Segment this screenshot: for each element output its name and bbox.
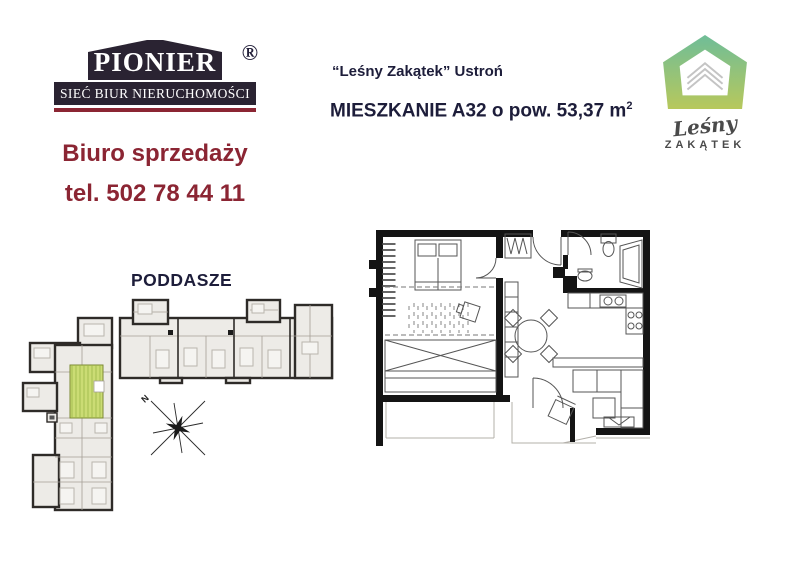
north-compass: N (139, 393, 205, 455)
apartment-floorplan (358, 212, 660, 460)
floor-label: PODDASZE (131, 270, 232, 291)
bedroom-furniture (385, 240, 496, 392)
project-name: “Leśny Zakątek” Ustroń (332, 63, 503, 80)
flyer-page: PIONIER ® SIEĆ BIUR NIERUCHOMOŚCI Biuro … (0, 0, 800, 565)
kitchen-fixtures (568, 293, 643, 334)
lesny-house-icon (660, 33, 750, 111)
unit-title: MIESZKANIE A32 o pow. 53,37 m2 (330, 100, 632, 122)
pionier-wordmark: PIONIER (94, 44, 217, 80)
lesny-logo: Leśny ZAKĄTEK (655, 33, 755, 151)
terrace-outline (386, 402, 650, 443)
overview-floorplan: N (10, 292, 355, 520)
registered-trademark: ® (242, 40, 258, 66)
square-meter-exponent: 2 (626, 100, 632, 112)
pionier-wordmark-shape: PIONIER (88, 40, 222, 80)
walls (369, 230, 650, 446)
sales-office-block: Biuro sprzedaży tel. 502 78 44 11 (34, 140, 276, 208)
brand-underline (54, 108, 256, 112)
living-furniture (505, 234, 643, 428)
pionier-logo: PIONIER ® SIEĆ BIUR NIERUCHOMOŚCI (54, 40, 256, 112)
sales-phone: tel. 502 78 44 11 (34, 180, 276, 208)
highlighted-unit-a32 (70, 365, 104, 418)
pionier-tagline: SIEĆ BIUR NIERUCHOMOŚCI (60, 86, 250, 102)
sales-office-label: Biuro sprzedaży (34, 140, 276, 168)
pionier-tagline-bar: SIEĆ BIUR NIERUCHOMOŚCI (54, 82, 256, 105)
lesny-script-text: Leśny (654, 109, 756, 143)
compass-n-label: N (139, 393, 151, 405)
